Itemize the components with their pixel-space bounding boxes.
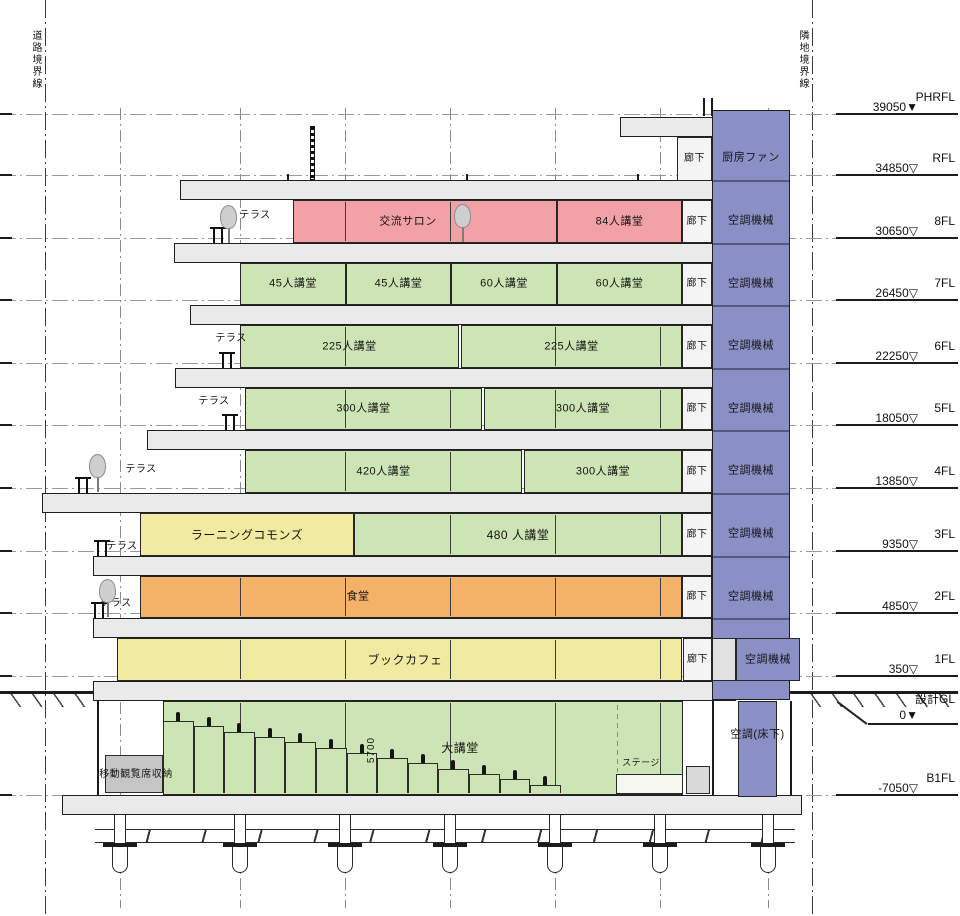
- railing-post: [233, 415, 235, 430]
- level-triangle-icon: ▽: [909, 474, 918, 488]
- seated-person-icon: [329, 739, 333, 748]
- room-label: 廊下: [687, 467, 708, 477]
- room-label: ブックカフェ: [367, 654, 442, 666]
- seated-person-icon: [421, 754, 425, 763]
- floor-slab: [174, 243, 714, 263]
- floor-slab: [180, 180, 714, 200]
- tree-crown-icon: [89, 454, 106, 478]
- window-mullion: [660, 515, 661, 554]
- tiered-seat-step: [500, 779, 531, 793]
- railing-post: [94, 603, 96, 618]
- railing-post: [221, 228, 223, 243]
- room-label: 大講堂: [441, 742, 479, 754]
- shaft-divider: [713, 618, 789, 620]
- window-mullion: [660, 578, 661, 616]
- tiered-seat-step: [163, 721, 194, 793]
- level-elevation: 34850▽: [788, 161, 918, 175]
- site-boundary-line: [812, 0, 813, 916]
- basement-wall: [97, 701, 99, 795]
- window-mullion: [450, 202, 451, 241]
- window-mullion: [660, 327, 661, 366]
- room-label: 60人講堂: [596, 279, 644, 290]
- floor-slab: [620, 117, 715, 137]
- window-mullion: [450, 390, 451, 428]
- level-underline-left: [0, 675, 12, 677]
- tiered-seat-step: [530, 785, 561, 793]
- level-triangle-icon: ▼: [906, 100, 918, 114]
- level-underline-left: [0, 174, 12, 176]
- shaft-room-label: 空調機械: [728, 529, 774, 540]
- level-elevation: 18050▽: [788, 411, 918, 425]
- elevation-value: 39050: [873, 100, 906, 114]
- room-label: 廊下: [684, 154, 705, 164]
- seated-person-icon: [207, 717, 211, 726]
- railing-post: [225, 415, 227, 430]
- room: [140, 576, 682, 618]
- ground-hatch-left: [0, 694, 97, 707]
- railing-post: [222, 353, 224, 368]
- roof-tick: [637, 174, 639, 181]
- column-stub: [549, 815, 561, 843]
- level-elevation: 350▽: [788, 662, 918, 676]
- level-elevation: 4850▽: [788, 599, 918, 613]
- level-elevation: 26450▽: [788, 286, 918, 300]
- window-mullion: [660, 390, 661, 428]
- tiered-seat-step: [255, 737, 286, 793]
- level-triangle-icon: ▽: [909, 599, 918, 613]
- shaft-room-label: 空調機械: [728, 216, 774, 227]
- floor-slab: [190, 305, 714, 325]
- room-label: 廊下: [687, 592, 708, 602]
- room-label: 45人講堂: [375, 279, 423, 290]
- level-triangle-icon: ▼: [906, 708, 918, 722]
- pile: [112, 847, 128, 873]
- roof-post: [711, 98, 713, 116]
- terrace-label: テラス: [125, 465, 156, 475]
- railing-cap: [227, 352, 235, 354]
- column-stub: [762, 815, 774, 843]
- seat-storage-label: 移動観覧席収納: [99, 770, 173, 780]
- level-triangle-icon: ▽: [909, 224, 918, 238]
- window-mullion: [450, 515, 451, 554]
- level-elevation: 9350▽: [788, 537, 918, 551]
- level-line: [0, 175, 958, 176]
- column-stub: [234, 815, 246, 843]
- shaft-divider: [713, 493, 789, 495]
- railing-cap: [219, 352, 227, 354]
- window-mullion: [345, 452, 346, 491]
- window-mullion: [240, 578, 241, 616]
- floor-slab: [62, 795, 802, 815]
- pile: [547, 847, 563, 873]
- railing-post: [213, 228, 215, 243]
- level-underline-left: [0, 612, 12, 614]
- level-elevation: 39050▼: [788, 100, 918, 114]
- shaft-room-label: 空調機械: [728, 279, 774, 290]
- seated-person-icon: [268, 728, 272, 737]
- movable-partition-line: [617, 705, 618, 772]
- elevation-value: -7050: [878, 781, 909, 795]
- level-underline-left: [0, 299, 12, 301]
- railing-cap: [83, 477, 91, 479]
- room-label: 60人講堂: [480, 279, 528, 290]
- elevation-value: 34850: [875, 161, 908, 175]
- shaft-divider: [713, 556, 789, 558]
- pile: [652, 847, 668, 873]
- window-mullion: [450, 578, 451, 616]
- level-elevation: 13850▽: [788, 474, 918, 488]
- elevation-value: 30650: [875, 224, 908, 238]
- elevation-value: 350: [889, 662, 909, 676]
- road-boundary-label: 道路境界線: [30, 30, 40, 90]
- seated-person-icon: [513, 770, 517, 779]
- railing-cap: [222, 414, 230, 416]
- level-underline-left: [0, 550, 12, 552]
- window-mullion: [345, 202, 346, 241]
- floor-slab: [93, 556, 712, 576]
- shaft-room-label: 空調機械: [728, 466, 774, 477]
- level-underline-left: [0, 237, 12, 239]
- railing-cap: [210, 227, 218, 229]
- tree-crown-icon: [454, 204, 471, 228]
- tiered-seat-step: [469, 774, 500, 793]
- railing-post: [230, 353, 232, 368]
- floor-slab: [93, 618, 712, 638]
- room-label: 食堂: [347, 592, 370, 603]
- level-triangle-icon: ▽: [909, 286, 918, 300]
- basement-equipment-box: [686, 766, 710, 794]
- level-underline-left: [0, 113, 12, 115]
- tiered-seat-step: [438, 769, 469, 793]
- level-triangle-icon: ▽: [909, 411, 918, 425]
- basement-wall: [712, 701, 714, 795]
- elevation-value: 13850: [875, 474, 908, 488]
- room-label: 廊下: [687, 217, 708, 227]
- gl-elevation: 0▼: [788, 708, 918, 722]
- railing-cap: [91, 602, 99, 604]
- column-stub: [339, 815, 351, 843]
- shaft-room-label: 空調機械: [728, 592, 774, 603]
- floor-slab: [42, 493, 712, 513]
- gl-underline: [868, 723, 958, 725]
- stage-platform: [616, 774, 683, 794]
- level-triangle-icon: ▽: [909, 537, 918, 551]
- railing-cap: [102, 540, 110, 542]
- shaft-room-label: 空調機械: [728, 404, 774, 415]
- shaft-divider: [713, 243, 789, 245]
- level-underline-left: [0, 794, 12, 796]
- terrace-label: テラス: [239, 211, 270, 221]
- shaft-room-label: 厨房ファン: [722, 153, 780, 164]
- level-underline-left: [0, 487, 12, 489]
- tiered-seat-step: [377, 758, 408, 793]
- level-triangle-icon: ▽: [909, 161, 918, 175]
- room-label: 225人講堂: [544, 341, 598, 352]
- antenna-icon: [310, 126, 315, 180]
- tree-crown-icon: [220, 205, 237, 229]
- level-elevation: -7050▽: [788, 781, 918, 795]
- elevation-value: 4850: [882, 599, 909, 613]
- room-label: 225人講堂: [322, 341, 376, 352]
- window-mullion: [555, 703, 556, 793]
- room-label: 空調機械: [745, 654, 791, 665]
- level-triangle-icon: ▽: [909, 781, 918, 795]
- room-label: 45人講堂: [269, 279, 317, 290]
- elevation-value: 9350: [882, 537, 909, 551]
- roof-post: [703, 98, 705, 116]
- floor-slab: [93, 681, 736, 701]
- basement-wall: [790, 701, 792, 795]
- shaft-divider: [713, 180, 789, 182]
- tiered-seat-step: [194, 726, 225, 793]
- column-stub: [444, 815, 456, 843]
- room-label: 廊下: [687, 279, 708, 289]
- pile: [337, 847, 353, 873]
- level-elevation: 22250▽: [788, 349, 918, 363]
- elevation-value: 26450: [875, 286, 908, 300]
- room-label: ラーニングコモンズ: [191, 529, 303, 541]
- pile: [442, 847, 458, 873]
- floor-slab: [147, 430, 714, 450]
- room-label: 300人講堂: [336, 404, 390, 415]
- terrace-label: テラス: [198, 397, 229, 407]
- level-underline-left: [0, 424, 12, 426]
- railing-post: [97, 541, 99, 556]
- level-triangle-icon: ▽: [909, 349, 918, 363]
- room-label: 84人講堂: [596, 216, 644, 227]
- column-stub: [654, 815, 666, 843]
- level-elevation: 30650▽: [788, 224, 918, 238]
- shaft-room-label: 空調機械: [728, 341, 774, 352]
- seated-person-icon: [237, 723, 241, 732]
- seated-person-icon: [298, 733, 302, 742]
- road-boundary-line: [45, 0, 46, 916]
- room: [712, 638, 736, 681]
- window-mullion: [240, 640, 241, 679]
- room-label: 廊下: [687, 404, 708, 414]
- level-line: [0, 114, 958, 115]
- tiered-seat-step: [316, 748, 347, 794]
- shaft-divider: [713, 305, 789, 307]
- dimension-5700: 5700: [367, 737, 377, 763]
- pile: [760, 847, 776, 873]
- room: [738, 701, 777, 797]
- railing-cap: [230, 414, 238, 416]
- room-label: 廊下: [687, 530, 708, 540]
- seated-person-icon: [451, 760, 455, 769]
- elevation-value: 22250: [875, 349, 908, 363]
- terrace-label: テラス: [106, 542, 137, 552]
- seated-person-icon: [360, 744, 364, 753]
- site-boundary-label: 隣地境界線: [797, 30, 807, 90]
- window-mullion: [660, 640, 661, 679]
- level-triangle-icon: ▽: [909, 662, 918, 676]
- railing-cap: [75, 477, 83, 479]
- railing-post: [86, 478, 88, 493]
- railing-post: [78, 478, 80, 493]
- seated-person-icon: [543, 776, 547, 785]
- window-mullion: [555, 515, 556, 554]
- room-label: 空調(床下): [730, 730, 784, 741]
- tiered-seat-step: [408, 763, 439, 793]
- room-label: 300人講堂: [576, 466, 630, 477]
- shaft-divider: [713, 430, 789, 432]
- railing-post: [105, 541, 107, 556]
- room-label: 廊下: [687, 342, 708, 352]
- room-label: 交流サロン: [379, 216, 437, 227]
- room-label: 300人講堂: [556, 404, 610, 415]
- room-label: 480 人講堂: [487, 529, 550, 541]
- window-mullion: [450, 452, 451, 491]
- roof-tick: [466, 174, 468, 181]
- roof-tick: [287, 174, 289, 181]
- floor-slab: [175, 368, 714, 388]
- level-underline-left: [0, 362, 12, 364]
- shaft-divider: [713, 368, 789, 370]
- railing-post: [102, 603, 104, 618]
- building-section-drawing: 道路境界線隣地境界線PHRFL39050▼RFL34850▽8FL30650▽7…: [0, 0, 960, 916]
- tree-crown-icon: [99, 579, 116, 603]
- pile: [232, 847, 248, 873]
- room-label: 420人講堂: [356, 466, 410, 477]
- stage-label: ステージ: [622, 759, 660, 768]
- tiered-seat-step: [224, 732, 255, 793]
- seated-person-icon: [482, 765, 486, 774]
- window-mullion: [450, 640, 451, 679]
- seated-person-icon: [176, 712, 180, 721]
- elevation-value: 18050: [875, 411, 908, 425]
- room-label: 廊下: [687, 655, 708, 665]
- terrace-label: テラス: [215, 334, 246, 344]
- window-mullion: [345, 640, 346, 679]
- column-stub: [114, 815, 126, 843]
- seated-person-icon: [390, 749, 394, 758]
- window-mullion: [555, 640, 556, 679]
- railing-cap: [94, 540, 102, 542]
- tiered-seat-step: [285, 742, 316, 793]
- window-mullion: [555, 578, 556, 616]
- gl-label: 設計GL: [835, 690, 955, 707]
